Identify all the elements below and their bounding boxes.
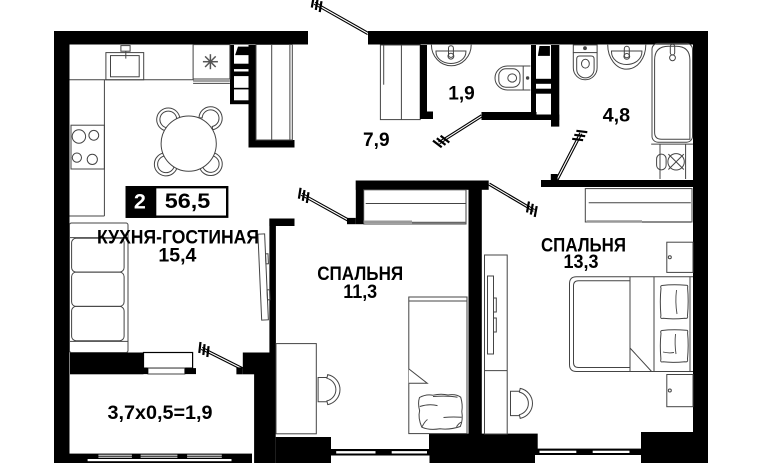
svg-text:11,3: 11,3 xyxy=(343,282,377,303)
svg-text:56,5: 56,5 xyxy=(165,189,211,213)
svg-text:2: 2 xyxy=(134,190,146,214)
svg-text:1,9: 1,9 xyxy=(448,83,475,104)
svg-text:13,3: 13,3 xyxy=(564,252,599,273)
svg-text:15,4: 15,4 xyxy=(158,246,196,267)
svg-text:7,9: 7,9 xyxy=(363,130,390,151)
svg-text:3,7x0,5=1,9: 3,7x0,5=1,9 xyxy=(108,403,213,424)
svg-text:4,8: 4,8 xyxy=(603,106,631,127)
